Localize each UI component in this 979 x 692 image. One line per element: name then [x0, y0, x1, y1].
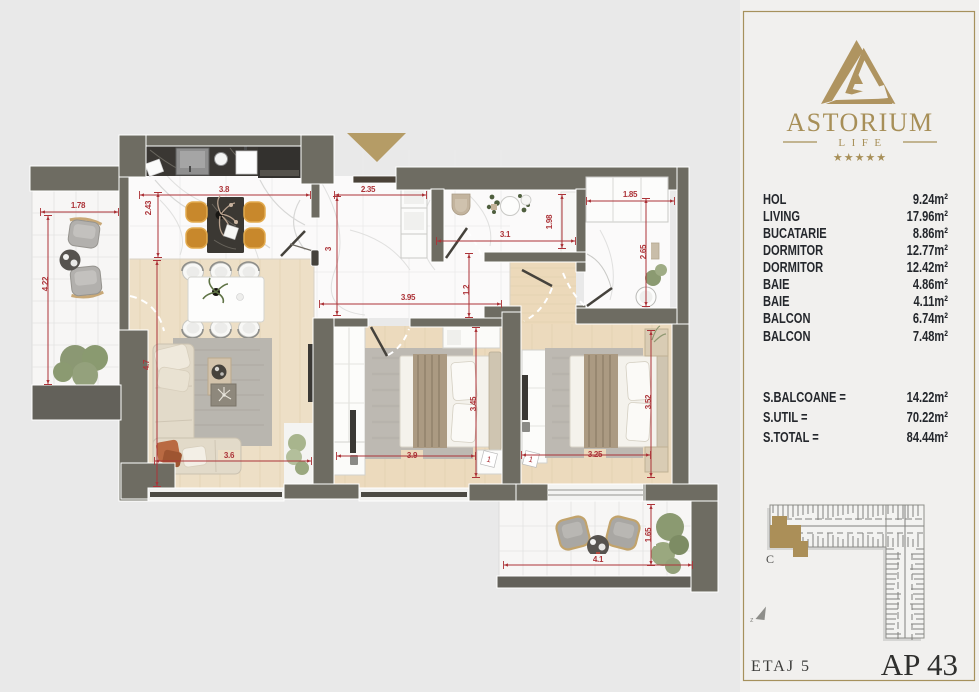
svg-text:4.86m²: 4.86m²: [913, 275, 949, 292]
svg-text:9.24m²: 9.24m²: [913, 190, 949, 207]
svg-text:1.78: 1.78: [71, 201, 86, 210]
svg-text:ETAJ 5: ETAJ 5: [751, 658, 811, 675]
svg-text:3.25: 3.25: [588, 450, 603, 459]
svg-text:4.11m²: 4.11m²: [913, 292, 948, 309]
svg-text:1.2: 1.2: [462, 284, 471, 295]
svg-text:2.65: 2.65: [639, 244, 648, 259]
svg-text:1.65: 1.65: [644, 527, 653, 542]
svg-text:12.77m²: 12.77m²: [907, 241, 949, 258]
svg-text:3.45: 3.45: [469, 396, 478, 411]
svg-text:3.9: 3.9: [407, 451, 418, 460]
svg-text:1.98: 1.98: [545, 214, 554, 229]
svg-text:LIVING: LIVING: [763, 207, 800, 224]
svg-text:8.86m²: 8.86m²: [913, 224, 949, 241]
svg-text:S.BALCOANE =: S.BALCOANE =: [763, 388, 846, 405]
svg-text:HOL: HOL: [763, 190, 786, 207]
svg-text:84.44m²: 84.44m²: [907, 428, 949, 445]
svg-text:3.6: 3.6: [224, 451, 235, 460]
svg-text:12.42m²: 12.42m²: [907, 258, 949, 275]
svg-text:3.1: 3.1: [500, 230, 511, 239]
svg-text:2.43: 2.43: [144, 200, 153, 215]
svg-text:4.22: 4.22: [41, 276, 50, 291]
svg-text:14.22m²: 14.22m²: [907, 388, 949, 405]
svg-text:70.22m²: 70.22m²: [907, 408, 949, 425]
svg-text:★★★★★: ★★★★★: [833, 152, 887, 164]
svg-text:BAIE: BAIE: [763, 275, 790, 292]
svg-text:4.7: 4.7: [142, 359, 151, 370]
svg-text:2.35: 2.35: [361, 185, 376, 194]
svg-text:DORMITOR: DORMITOR: [763, 241, 824, 258]
svg-text:ASTORIUM: ASTORIUM: [786, 108, 933, 137]
svg-text:LIFE: LIFE: [838, 137, 887, 149]
svg-text:C: C: [766, 552, 774, 566]
svg-text:1.85: 1.85: [623, 190, 638, 199]
svg-text:z: z: [750, 617, 754, 624]
svg-text:6.74m²: 6.74m²: [913, 309, 949, 326]
svg-text:BALCON: BALCON: [763, 309, 810, 326]
svg-text:4.1: 4.1: [593, 555, 604, 564]
svg-text:3.8: 3.8: [219, 185, 230, 194]
svg-text:DORMITOR: DORMITOR: [763, 258, 824, 275]
svg-text:3.52: 3.52: [644, 394, 653, 409]
svg-text:BALCON: BALCON: [763, 327, 810, 344]
svg-text:AP 43: AP 43: [881, 647, 958, 682]
svg-text:BAIE: BAIE: [763, 292, 790, 309]
svg-text:7.48m²: 7.48m²: [913, 327, 949, 344]
svg-text:3.95: 3.95: [401, 293, 416, 302]
svg-text:17.96m²: 17.96m²: [907, 207, 949, 224]
svg-text:BUCATARIE: BUCATARIE: [763, 224, 827, 241]
svg-text:S.UTIL =: S.UTIL =: [763, 408, 808, 425]
svg-text:S.TOTAL =: S.TOTAL =: [763, 428, 819, 445]
